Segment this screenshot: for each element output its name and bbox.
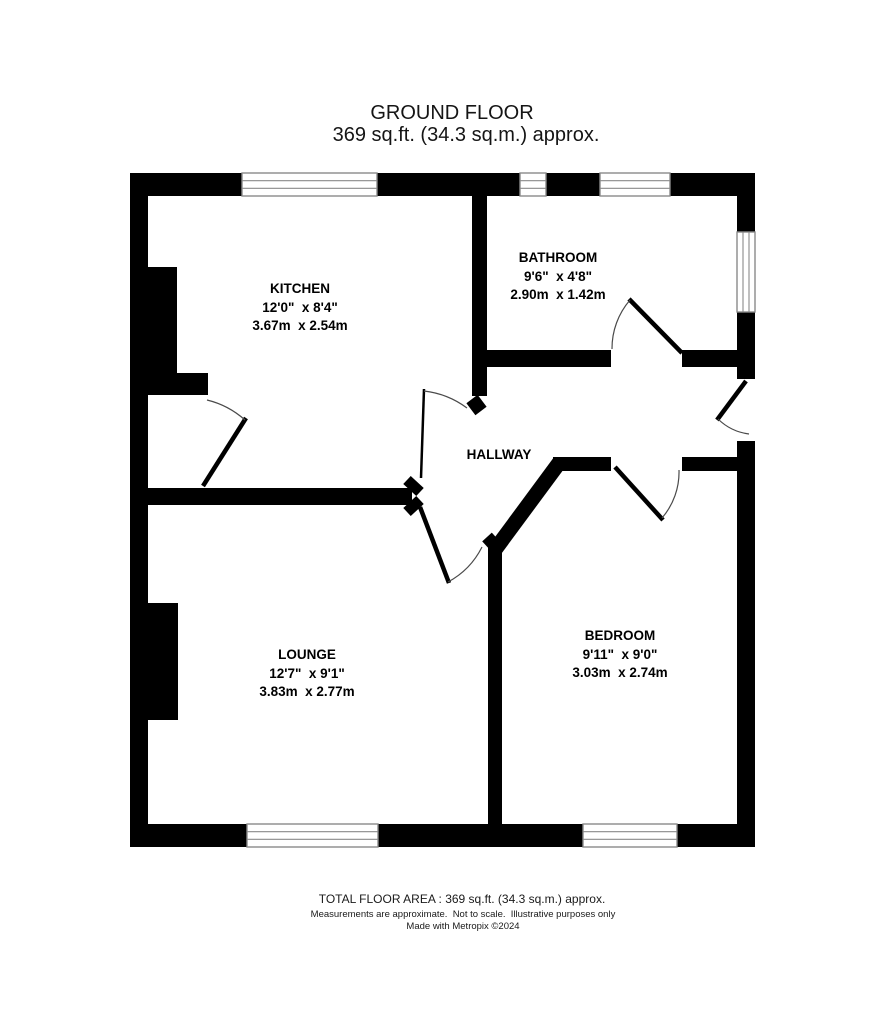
wall-left	[130, 173, 148, 847]
door-leaf-bedroom	[615, 467, 663, 520]
room-dims-imperial: 9'6" x 4'8"	[524, 269, 592, 284]
room-dims-metric: 3.83m x 2.77m	[259, 684, 354, 699]
chimney-breast-lounge	[148, 603, 178, 720]
room-name: HALLWAY	[467, 447, 532, 462]
window-bedroom	[583, 824, 677, 847]
bevel-bedroom-wall-top	[487, 537, 498, 549]
window-bathroom-right	[737, 232, 755, 312]
footer: TOTAL FLOOR AREA : 369 sq.ft. (34.3 sq.m…	[311, 892, 616, 932]
label-lounge: LOUNGE 12'7" x 9'1" 3.83m x 2.77m	[259, 647, 354, 699]
total-floor-area: TOTAL FLOOR AREA : 369 sq.ft. (34.3 sq.m…	[319, 892, 606, 906]
room-dims-metric: 3.03m x 2.74m	[572, 665, 667, 680]
room-labels: KITCHEN 12'0" x 8'4" 3.67m x 2.54m BATHR…	[252, 250, 667, 699]
door-leaf-lounge	[420, 507, 449, 583]
door-arc-kitchen-hall	[424, 391, 467, 408]
plan-subtitle: 369 sq.ft. (34.3 sq.m.) approx.	[333, 124, 600, 146]
room-dims-imperial: 12'7" x 9'1"	[269, 666, 345, 681]
floor-plan-page: GROUND FLOOR 369 sq.ft. (34.3 sq.m.) app…	[0, 0, 886, 1019]
wall-bathroom-south-west	[473, 350, 611, 367]
door-leaf-kitchen-hall	[421, 389, 424, 478]
label-kitchen: KITCHEN 12'0" x 8'4" 3.67m x 2.54m	[252, 281, 347, 333]
disclaimer: Measurements are approximate. Not to sca…	[311, 909, 616, 920]
credit: Made with Metropix ©2024	[406, 921, 519, 932]
wall-block-kitchen-sw	[148, 373, 208, 395]
room-name: BEDROOM	[585, 628, 656, 643]
wall-hallway-south-east	[682, 457, 738, 471]
window-top-small	[520, 173, 546, 196]
room-name: KITCHEN	[270, 281, 330, 296]
room-name: LOUNGE	[278, 647, 336, 662]
wall-bedroom-west	[488, 541, 502, 824]
wall-right-upper	[737, 173, 755, 233]
door-arc-bedroom	[662, 470, 679, 518]
door-arc-kitchen-west	[207, 400, 245, 420]
label-bathroom: BATHROOM 9'6" x 4'8" 2.90m x 1.42m	[510, 250, 605, 302]
door-leaf-kitchen-west	[203, 418, 246, 486]
wall-hallway-diagonal	[494, 463, 559, 551]
room-name: BATHROOM	[519, 250, 598, 265]
room-dims-imperial: 12'0" x 8'4"	[262, 300, 338, 315]
chimney-breast-kitchen	[148, 267, 177, 374]
wall-right-lower	[737, 441, 755, 847]
window-lounge	[247, 824, 378, 847]
room-dims-imperial: 9'11" x 9'0"	[583, 647, 658, 662]
floor-plan-svg: GROUND FLOOR 369 sq.ft. (34.3 sq.m.) app…	[0, 0, 886, 1019]
wall-kitchen-lounge-divider	[130, 488, 412, 505]
label-bedroom: BEDROOM 9'11" x 9'0" 3.03m x 2.74m	[572, 628, 667, 680]
wall-right-mid	[737, 312, 755, 379]
walls	[130, 173, 755, 847]
door-arc-front	[718, 419, 749, 434]
plan-title: GROUND FLOOR	[370, 102, 533, 124]
header: GROUND FLOOR 369 sq.ft. (34.3 sq.m.) app…	[333, 102, 600, 146]
room-dims-metric: 3.67m x 2.54m	[252, 318, 347, 333]
room-dims-metric: 2.90m x 1.42m	[510, 287, 605, 302]
window-bathroom-top	[600, 173, 670, 196]
door-arc-bathroom	[612, 300, 630, 349]
door-leaf-front	[717, 381, 746, 420]
door-leaf-bathroom	[629, 299, 682, 353]
door-arc-lounge	[448, 547, 482, 582]
wall-bathroom-south-east	[682, 350, 738, 367]
label-hallway: HALLWAY	[467, 447, 532, 462]
bevel-bathroom-divider-end	[472, 399, 481, 411]
window-kitchen	[242, 173, 377, 196]
